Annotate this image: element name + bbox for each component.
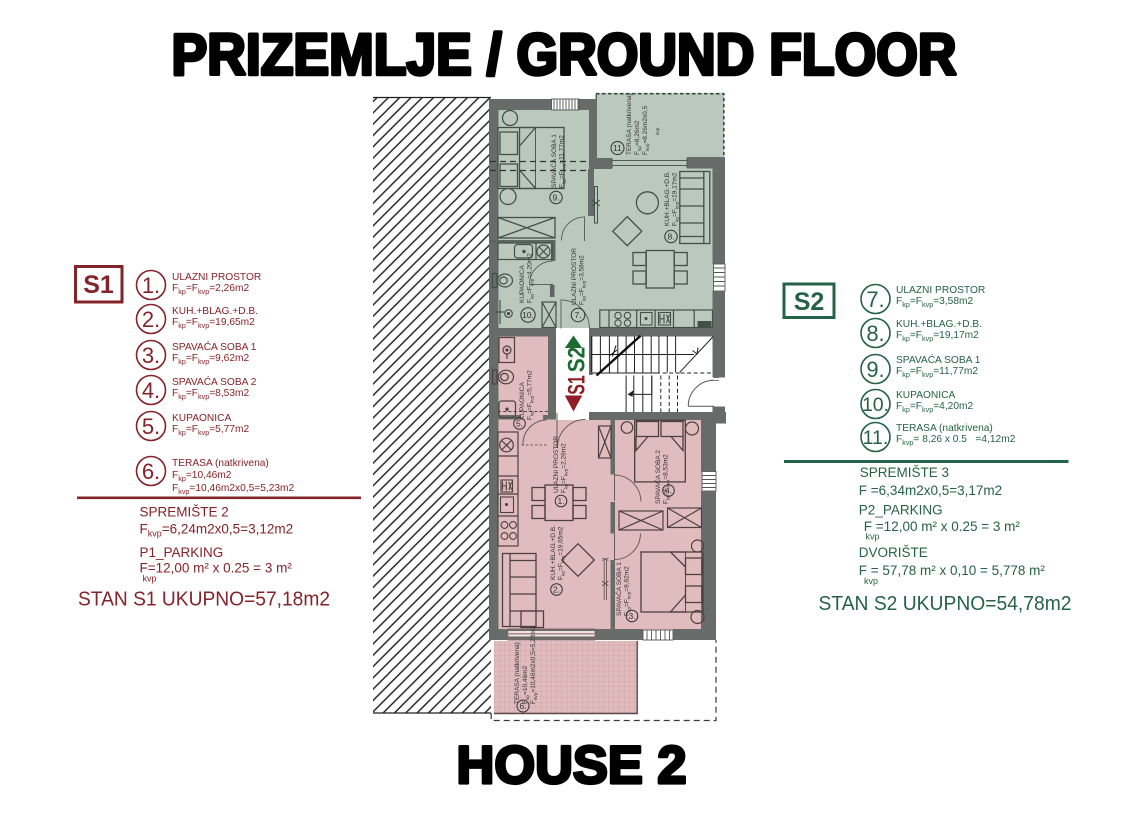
svg-text:DVORIŠTE: DVORIŠTE xyxy=(859,545,928,560)
svg-text:8.: 8. xyxy=(667,232,674,242)
svg-text:Fkvp=10,46m2x0,5=5,23m2: Fkvp=10,46m2x0,5=5,23m2 xyxy=(172,483,295,496)
svg-text:ULAZNI PROSTOR: ULAZNI PROSTOR xyxy=(571,248,578,305)
svg-text:6.: 6. xyxy=(142,459,160,484)
svg-text:2.: 2. xyxy=(142,307,160,332)
svg-text:10.: 10. xyxy=(522,310,534,320)
svg-text:SPAVAĆA SOBA 1: SPAVAĆA SOBA 1 xyxy=(172,340,257,353)
svg-text:KUPAONICA: KUPAONICA xyxy=(172,413,231,424)
svg-text:SPAVAĆA SOBA 1: SPAVAĆA SOBA 1 xyxy=(549,134,558,188)
svg-text:kvp: kvp xyxy=(866,532,880,542)
svg-text:KUH.+BLAG.+D.B.: KUH.+BLAG.+D.B. xyxy=(172,306,258,317)
svg-text:S1: S1 xyxy=(564,375,591,395)
svg-text:11.: 11. xyxy=(863,427,889,449)
svg-text:KUH.+BLAG.+D.B.: KUH.+BLAG.+D.B. xyxy=(896,319,982,330)
svg-text:kvp: kvp xyxy=(143,574,157,584)
svg-text:PRIZEMLJE / GROUND FLOOR: PRIZEMLJE / GROUND FLOOR xyxy=(172,23,957,88)
svg-text:TERASA (natkrivena): TERASA (natkrivena) xyxy=(896,423,993,434)
svg-text:2.: 2. xyxy=(553,584,560,594)
svg-text:11: 11 xyxy=(613,143,622,153)
svg-text:1.: 1. xyxy=(557,496,564,506)
svg-text:ULAZNI PROSTOR: ULAZNI PROSTOR xyxy=(172,272,261,283)
svg-text:kvp: kvp xyxy=(864,576,878,586)
svg-text:Fkvp=6,24m2x0,5=3,12m2: Fkvp=6,24m2x0,5=3,12m2 xyxy=(140,522,294,539)
svg-text:5.: 5. xyxy=(516,418,523,428)
svg-text:10.: 10. xyxy=(862,394,889,416)
svg-text:KUPAONICA: KUPAONICA xyxy=(519,265,526,303)
svg-text:S2: S2 xyxy=(794,288,825,316)
svg-text:7.: 7. xyxy=(866,287,884,312)
svg-text:S2: S2 xyxy=(564,347,591,373)
svg-text:TERASA (natkrivena): TERASA (natkrivena) xyxy=(626,93,633,155)
svg-text:5.: 5. xyxy=(142,414,160,439)
svg-text:TERASA (natkrivena): TERASA (natkrivena) xyxy=(172,458,269,469)
svg-text:9.: 9. xyxy=(552,193,559,203)
svg-text:STAN S2 UKUPNO=54,78m2: STAN S2 UKUPNO=54,78m2 xyxy=(819,592,1072,615)
svg-text:6.: 6. xyxy=(519,701,526,711)
svg-text:TERASA (natkrivena): TERASA (natkrivena) xyxy=(514,642,521,704)
svg-text:4.: 4. xyxy=(142,378,160,403)
svg-text:4.: 4. xyxy=(665,485,672,495)
svg-text:KUPAONICA: KUPAONICA xyxy=(519,382,526,420)
svg-text:F =12,00 m² x 0.25 = 3 m²: F =12,00 m² x 0.25 = 3 m² xyxy=(864,519,1021,534)
svg-text:KUH.+BLAG.+D.B.: KUH.+BLAG.+D.B. xyxy=(664,171,671,226)
svg-text:1.: 1. xyxy=(142,273,160,298)
svg-text:SPAVAĆA SOBA 1: SPAVAĆA SOBA 1 xyxy=(896,353,981,366)
svg-text:F = 57,78 m² x 0,10 = 5,778 m²: F = 57,78 m² x 0,10 = 5,778 m² xyxy=(859,563,1046,578)
svg-text:SPAVAĆA SOBA 2: SPAVAĆA SOBA 2 xyxy=(653,450,662,504)
svg-text:3.: 3. xyxy=(142,343,160,368)
svg-text:F =6,34m2x0,5=3,17m2: F =6,34m2x0,5=3,17m2 xyxy=(859,483,1002,498)
svg-text:Fkvp= 8,26 x 0.5 =4,12m2: Fkvp= 8,26 x 0.5 =4,12m2 xyxy=(896,434,1016,447)
svg-text:ULAZNI PROSTOR: ULAZNI PROSTOR xyxy=(896,285,985,296)
svg-text:8.: 8. xyxy=(866,321,884,346)
svg-text:3.: 3. xyxy=(628,611,635,621)
svg-text:ULAZNI PROSTOR: ULAZNI PROSTOR xyxy=(553,436,560,493)
svg-text:7.: 7. xyxy=(574,310,581,320)
svg-text:P2_PARKING: P2_PARKING xyxy=(859,503,943,518)
svg-text:SPAVAĆA SOBA 1: SPAVAĆA SOBA 1 xyxy=(614,562,623,616)
svg-text:SPREMIŠTE 2: SPREMIŠTE 2 xyxy=(140,505,229,520)
svg-text:KUPAONICA: KUPAONICA xyxy=(896,390,955,401)
svg-text:P1_PARKING: P1_PARKING xyxy=(140,545,224,560)
svg-text:KUH.+BLAG.+D.B.: KUH.+BLAG.+D.B. xyxy=(550,525,557,580)
svg-text:STAN S1 UKUPNO=57,18m2: STAN S1 UKUPNO=57,18m2 xyxy=(78,588,330,611)
svg-text:SPAVAĆA SOBA 2: SPAVAĆA SOBA 2 xyxy=(172,375,257,388)
svg-text:9.: 9. xyxy=(866,357,884,382)
svg-text:SPREMIŠTE 3: SPREMIŠTE 3 xyxy=(860,465,949,480)
svg-text:HOUSE 2: HOUSE 2 xyxy=(457,736,687,795)
svg-text:kvp: kvp xyxy=(655,127,661,135)
svg-text:S1: S1 xyxy=(83,271,114,299)
svg-text:F=12,00 m² x 0.25 = 3 m²: F=12,00 m² x 0.25 = 3 m² xyxy=(140,561,293,576)
